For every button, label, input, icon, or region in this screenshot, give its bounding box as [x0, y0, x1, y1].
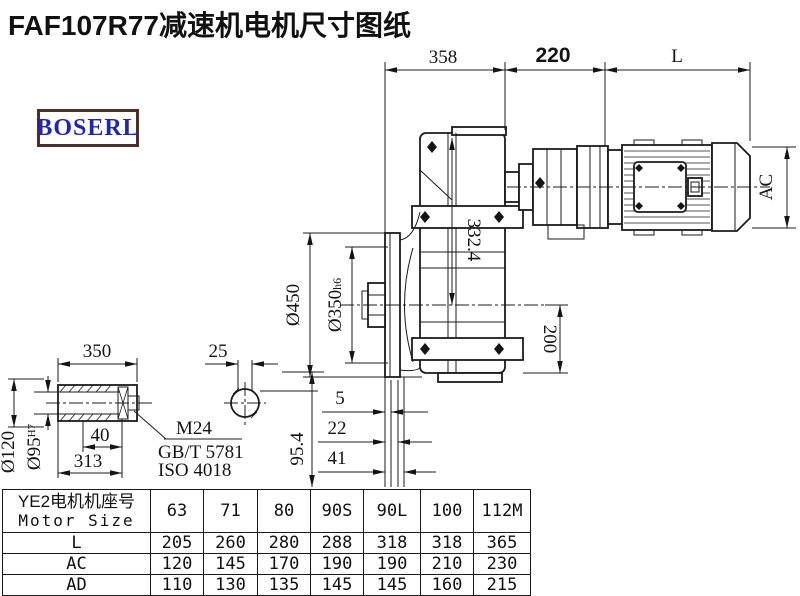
label-standard-iso: ISO 4018	[158, 460, 231, 481]
dim-shaft-length-350: 350	[83, 341, 112, 362]
table-cell: 318	[421, 533, 474, 554]
row-label: AD	[3, 575, 151, 596]
table-cell: 145	[364, 575, 421, 596]
table-col-header: 112M	[474, 490, 531, 533]
hollow-shaft-detail: M24 GB/T 5781 ISO 4018 350 40 313 Ø120	[0, 341, 244, 481]
table-cell: 190	[364, 554, 421, 575]
row-label: AC	[3, 554, 151, 575]
dim-313: 313	[74, 451, 103, 472]
table-cell: 280	[258, 533, 311, 554]
table-cell: 230	[474, 554, 531, 575]
dim-bore-diameter-95: Ø95H7	[24, 423, 45, 470]
dim-25: 25	[209, 341, 228, 362]
table-col-header: 100	[421, 490, 474, 533]
dim-flange-od: Ø450	[283, 284, 304, 326]
table-cell: 135	[258, 575, 311, 596]
table-col-header: 71	[204, 490, 258, 533]
dim-hub-diameter-120: Ø120	[0, 431, 19, 473]
dim-offset-22: 22	[328, 418, 347, 439]
table-col-header: 80	[258, 490, 311, 533]
table-row-AD: AD 110 130 135 145 145 160 215	[3, 575, 531, 596]
table-cell: 190	[311, 554, 364, 575]
dim-motor-length-L: L	[671, 46, 683, 67]
table-cell: 215	[474, 575, 531, 596]
table-col-header: 90S	[311, 490, 364, 533]
dim-center-height-332: 332.4	[463, 219, 484, 262]
label-bolt-m24: M24	[176, 418, 212, 439]
row-label: L	[3, 533, 151, 554]
table-row-AC: AC 120 145 170 190 190 210 230	[3, 554, 531, 575]
header-cn: YE2电机机座号	[3, 492, 150, 512]
table-cell: 288	[311, 533, 364, 554]
table-cell: 210	[421, 554, 474, 575]
table-cell: 318	[364, 533, 421, 554]
table-cell: 260	[204, 533, 258, 554]
dim-motor-diameter-AC: AC	[756, 174, 777, 200]
table-row-L: L 205 260 280 288 318 318 365	[3, 533, 531, 554]
table-cell: 205	[151, 533, 204, 554]
table-cell: 365	[474, 533, 531, 554]
header-en: Motor Size	[3, 512, 150, 530]
motor-size-table: YE2电机机座号 Motor Size 63 71 80 90S 90L 100…	[2, 489, 531, 596]
table-col-header: 90L	[364, 490, 421, 533]
dim-offset-5: 5	[335, 388, 345, 409]
dim-spigot-diameter: Ø350h6	[325, 278, 346, 332]
table-header-motor-size: YE2电机机座号 Motor Size	[3, 490, 151, 533]
dim-ac: AC	[752, 147, 796, 228]
table-cell: 120	[151, 554, 204, 575]
page: FAF107R77减速机电机尺寸图纸 BOSERL	[0, 0, 800, 596]
table-cell: 160	[421, 575, 474, 596]
dim-95-4: 95.4	[287, 432, 308, 466]
table-cell: 170	[258, 554, 311, 575]
dim-adapter-length: 220	[535, 44, 570, 67]
dim-40: 40	[91, 425, 110, 446]
table-col-header: 63	[151, 490, 204, 533]
table-cell: 145	[311, 575, 364, 596]
dim-center-height-200: 200	[539, 325, 560, 354]
table-cell: 110	[151, 575, 204, 596]
dim-gearbox-length: 358	[429, 47, 458, 68]
table-header-row: YE2电机机座号 Motor Size 63 71 80 90S 90L 100…	[3, 490, 531, 533]
dim-offset-41: 41	[328, 448, 347, 469]
table-cell: 145	[204, 554, 258, 575]
table-cell: 130	[204, 575, 258, 596]
dim-flange-diameters: Ø450 Ø350h6	[283, 233, 422, 377]
dim-offsets: 5 22 41	[318, 377, 436, 487]
